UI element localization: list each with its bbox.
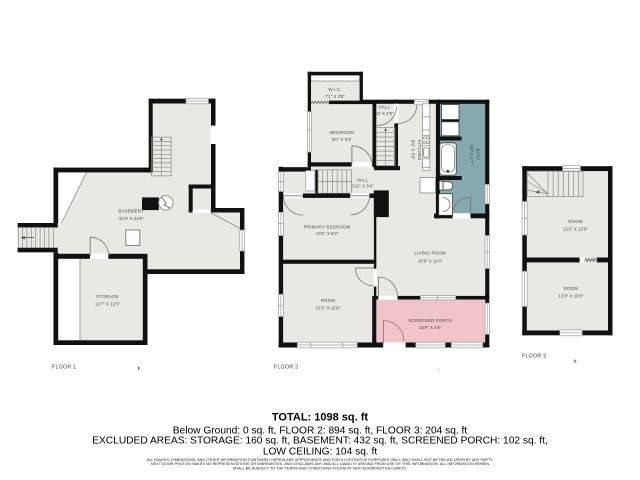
- svg-text:15'9" X 11'4": 15'9" X 11'4": [418, 258, 443, 263]
- svg-text:15'9" X 6'5": 15'9" X 6'5": [419, 325, 442, 330]
- svg-text:10' X 2'5": 10' X 2'5": [375, 111, 394, 116]
- svg-text:8'9" X 5'5": 8'9" X 5'5": [410, 140, 415, 161]
- svg-text:3'11" X 3'4": 3'11" X 3'4": [351, 184, 374, 189]
- svg-text:7'1" X 3'8": 7'1" X 3'8": [325, 94, 346, 99]
- svg-text:HALL: HALL: [357, 177, 369, 182]
- svg-text:BASEMENT: BASEMENT: [118, 208, 144, 213]
- svg-text:BEDROOM: BEDROOM: [330, 130, 354, 135]
- svg-text:HALL: HALL: [379, 105, 391, 110]
- svg-text:6'9" X 6'7": 6'9" X 6'7": [469, 144, 474, 165]
- svg-text:FLOOR 3: FLOOR 3: [522, 353, 546, 359]
- svg-text:FLOOR 1: FLOOR 1: [52, 364, 76, 370]
- svg-text:SHALL BE SUBJECT TO THE TERMS: SHALL BE SUBJECT TO THE TERMS AND CONDIT…: [233, 466, 408, 470]
- svg-text:KITCHEN: KITCHEN: [417, 140, 422, 161]
- svg-text:ROOM: ROOM: [321, 298, 336, 303]
- svg-text:31'8" X 24'5": 31'8" X 24'5": [119, 216, 144, 221]
- svg-text:EXCLUDED AREAS: STORAGE: 160 s: EXCLUDED AREAS: STORAGE: 160 sq. ft, BAS…: [92, 436, 548, 447]
- svg-text:LOW CEILING: 104 sq. ft: LOW CEILING: 104 sq. ft: [263, 446, 378, 457]
- svg-text:SCREENED PORCH: SCREENED PORCH: [408, 318, 452, 323]
- svg-text:12'2" X 12'9": 12'2" X 12'9": [563, 226, 588, 231]
- svg-text:ROOM: ROOM: [564, 286, 579, 291]
- svg-text:BATH: BATH: [476, 148, 481, 160]
- svg-text:13'3" X 11'8": 13'3" X 11'8": [316, 306, 341, 311]
- svg-text:FLOOR 2: FLOOR 2: [274, 364, 298, 370]
- svg-text:PRIMARY BEDROOM: PRIMARY BEDROOM: [304, 224, 351, 229]
- svg-text:W.I.C.: W.I.C.: [328, 87, 341, 92]
- svg-text:STORAGE: STORAGE: [96, 294, 119, 299]
- svg-text:12'7" X 12'3": 12'7" X 12'3": [95, 301, 120, 306]
- svg-text:LIVING ROOM: LIVING ROOM: [414, 251, 446, 256]
- svg-text:13'3" X 10'0": 13'3" X 10'0": [559, 293, 584, 298]
- svg-text:TOTAL: 1098 sq. ft: TOTAL: 1098 sq. ft: [272, 412, 369, 424]
- svg-text:ROOM: ROOM: [568, 219, 583, 224]
- svg-text:9'0" X 9'3": 9'0" X 9'3": [332, 137, 353, 142]
- svg-text:13'2" X 9'2": 13'2" X 9'2": [316, 231, 339, 236]
